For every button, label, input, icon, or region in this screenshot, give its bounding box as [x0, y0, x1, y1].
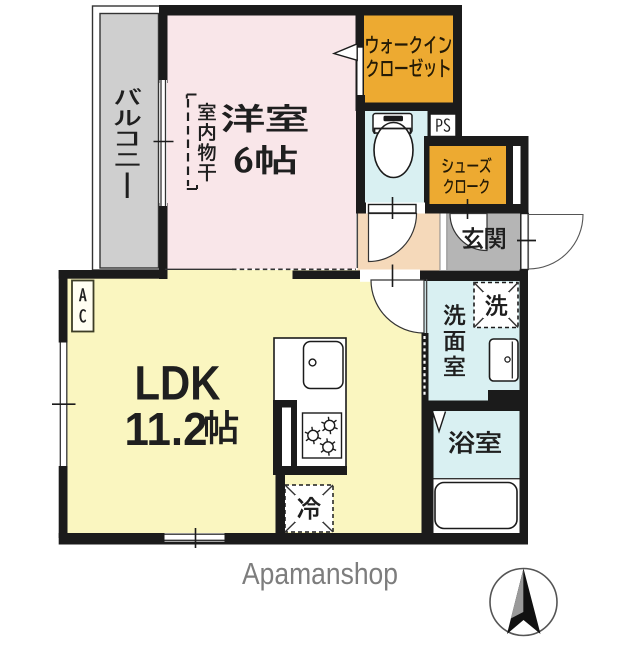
svg-text:11.2: 11.2	[125, 403, 208, 455]
svg-text:Apamanshop: Apamanshop	[242, 557, 398, 591]
